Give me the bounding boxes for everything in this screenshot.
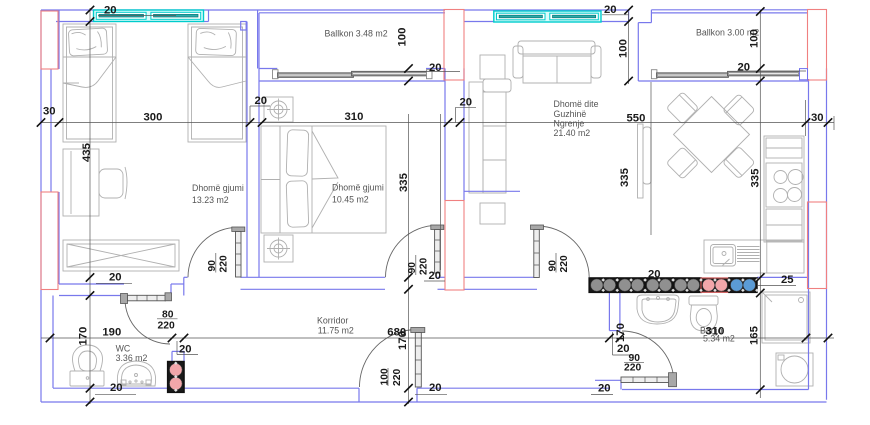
svg-text:220: 220 (392, 369, 403, 386)
svg-text:10.45 m2: 10.45 m2 (332, 195, 369, 205)
svg-text:220: 220 (624, 363, 641, 374)
svg-text:20: 20 (598, 383, 611, 395)
svg-text:Dhomë gjumi: Dhomë gjumi (332, 183, 384, 193)
svg-text:170: 170 (397, 331, 409, 350)
svg-text:335: 335 (750, 169, 762, 188)
svg-text:310: 310 (345, 111, 364, 123)
svg-text:20: 20 (179, 344, 192, 356)
svg-text:20: 20 (110, 382, 123, 394)
svg-text:30: 30 (811, 112, 824, 124)
svg-text:Guzhinë: Guzhinë (554, 109, 587, 119)
svg-text:80: 80 (162, 310, 174, 321)
svg-text:20: 20 (429, 382, 442, 394)
svg-text:20: 20 (255, 95, 268, 107)
svg-text:220: 220 (158, 321, 175, 332)
svg-text:435: 435 (81, 143, 93, 162)
svg-text:300: 300 (144, 112, 163, 124)
svg-text:20: 20 (648, 269, 661, 281)
svg-text:Ballkon 3.48 m2: Ballkon 3.48 m2 (325, 29, 388, 39)
svg-text:13.23 m2: 13.23 m2 (192, 195, 229, 205)
svg-text:335: 335 (619, 168, 631, 187)
svg-text:Korridor: Korridor (317, 316, 348, 326)
svg-text:165: 165 (749, 326, 761, 345)
svg-text:220: 220 (219, 255, 230, 272)
svg-text:20: 20 (738, 62, 751, 74)
svg-text:100: 100 (380, 368, 391, 385)
svg-text:90: 90 (407, 262, 418, 274)
svg-text:550: 550 (627, 113, 646, 125)
svg-text:30: 30 (43, 106, 56, 118)
svg-text:100: 100 (397, 28, 409, 47)
svg-text:170: 170 (77, 327, 89, 346)
svg-text:100: 100 (749, 29, 761, 48)
svg-text:11.75 m2: 11.75 m2 (318, 325, 354, 335)
svg-text:90: 90 (548, 260, 559, 272)
svg-text:220: 220 (559, 255, 570, 272)
svg-text:170: 170 (615, 323, 627, 342)
svg-text:20: 20 (460, 97, 473, 109)
svg-text:WC: WC (116, 344, 131, 354)
svg-text:20: 20 (109, 272, 122, 284)
svg-text:335: 335 (398, 173, 410, 192)
svg-text:Dhomë dite: Dhomë dite (554, 99, 599, 109)
svg-text:100: 100 (618, 39, 630, 58)
svg-text:Ngrenje: Ngrenje (554, 118, 585, 128)
svg-text:20: 20 (604, 4, 617, 16)
svg-text:190: 190 (102, 327, 121, 339)
svg-text:20: 20 (429, 270, 442, 282)
svg-text:Dhomë gjumi: Dhomë gjumi (192, 183, 244, 193)
svg-text:20: 20 (429, 62, 442, 74)
svg-text:25: 25 (781, 274, 794, 286)
svg-text:20: 20 (104, 5, 117, 17)
svg-text:90: 90 (207, 260, 218, 272)
svg-text:220: 220 (419, 258, 430, 275)
svg-text:310: 310 (706, 326, 725, 338)
svg-text:21.40 m2: 21.40 m2 (554, 128, 591, 138)
svg-text:3.36 m2: 3.36 m2 (116, 353, 148, 363)
